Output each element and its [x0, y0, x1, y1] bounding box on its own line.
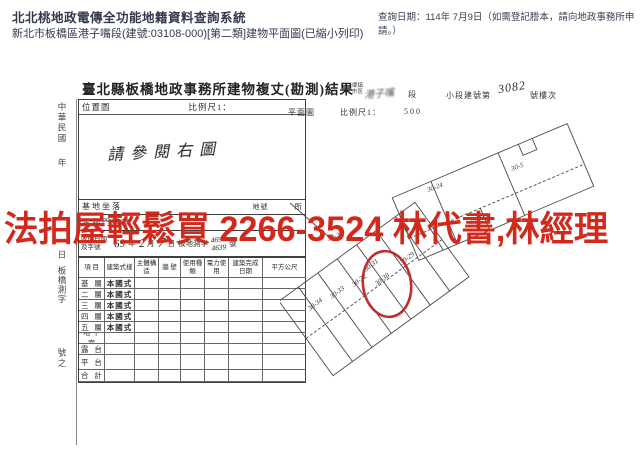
scanned-doc-title: 臺北縣板橋地政事務所建物複丈(勘測)結果 — [82, 78, 354, 98]
margin-no-label: 號之 — [56, 348, 68, 369]
grid-header-item: 項 目 — [79, 258, 105, 278]
measurement-table: 項 目 建築式樣 主體構造 牆 壁 使用種類 電力使用 建築完成日期 平方公尺 … — [78, 257, 306, 383]
grid-row-style: 本國式 — [105, 300, 135, 311]
grid-header-style: 建築式樣 — [105, 258, 135, 278]
handwritten-refer-note: 請參閱右圖 — [106, 135, 222, 165]
grid-row-label: 二 層 — [79, 289, 105, 300]
location-scale-label: 比例尺1： — [189, 101, 232, 113]
grid-row-label: 露 台 — [79, 344, 105, 355]
grid-row-label: 地下室 — [79, 333, 105, 344]
margin-year: 年 — [56, 158, 68, 169]
grid-header-wall: 牆 壁 — [159, 258, 181, 278]
building-no-suffix: 號樓次 — [530, 90, 557, 101]
location-label: 位置圖 — [82, 101, 111, 113]
grid-header-usage: 使用種類 — [181, 258, 205, 278]
document-subtitle: 新北市板橋區港子嘴段(建號:03108-000)[第二類]建物平面圖(已縮小列印… — [12, 25, 363, 41]
parcel-label: 30-32 — [350, 272, 369, 289]
grid-row-style: 本國式 — [105, 322, 135, 333]
location-box-header: 位置圖 比例尺1： — [79, 100, 305, 115]
grid-row-style: 本國式 — [105, 311, 135, 322]
grid-row-style — [105, 333, 135, 344]
grid-row-style — [105, 370, 135, 382]
plan-scale-value: 500 — [404, 107, 422, 116]
location-map-box: 位置圖 比例尺1： 請參閱右圖 — [78, 99, 306, 200]
floor-plan-label: 平面圖 — [288, 107, 315, 118]
handwritten-section-name: 港子嘴 — [363, 84, 394, 102]
township-label: 鄉鎮市區 — [352, 83, 364, 96]
grid-row-label: 平 台 — [79, 355, 105, 370]
system-title: 北北桃地政電傳全功能地籍資料查詢系統 — [12, 7, 246, 26]
doc-left-border — [76, 99, 77, 445]
grid-row-label: 四 層 — [79, 311, 105, 322]
watermark-text: 法拍屋輕鬆買 2266-3524 林代書,林經理 — [4, 201, 608, 252]
query-date: 查詢日期：114年 7月9日（如需登記謄本，請向地政事務所申請。） — [378, 9, 640, 37]
grid-row-label: 三 層 — [79, 300, 105, 311]
grid-row-style — [105, 355, 135, 370]
grid-row-style — [105, 344, 135, 355]
section-suffix-label: 段 — [408, 89, 417, 100]
parcel-label: 30-30 — [373, 271, 392, 288]
grid-header-power: 電力使用 — [205, 258, 229, 278]
grid-header-structure: 主體構造 — [135, 258, 159, 278]
building-no-label: 小段建號第 — [446, 90, 491, 101]
grid-header-completion: 建築完成日期 — [229, 258, 263, 278]
grid-row-label: 基 層 — [79, 278, 105, 289]
grid-row-label: 合 計 — [79, 370, 105, 382]
grid-row-style: 本國式 — [105, 278, 135, 289]
grid-row-label: 五 層 — [79, 322, 105, 333]
margin-era: 中華民國 — [56, 102, 68, 144]
floor-plan-drawing: 30-24 30-5 30-23 30-25 30-34 30-33 30-32… — [280, 118, 640, 398]
grid-row-style: 本國式 — [105, 289, 135, 300]
handwritten-building-no: 3082 — [497, 78, 527, 97]
margin-file-label: 板橋測字 — [56, 266, 68, 304]
plan-scale-label: 比例尺1： — [340, 107, 381, 118]
parcel-label: 30-5 — [509, 161, 525, 173]
